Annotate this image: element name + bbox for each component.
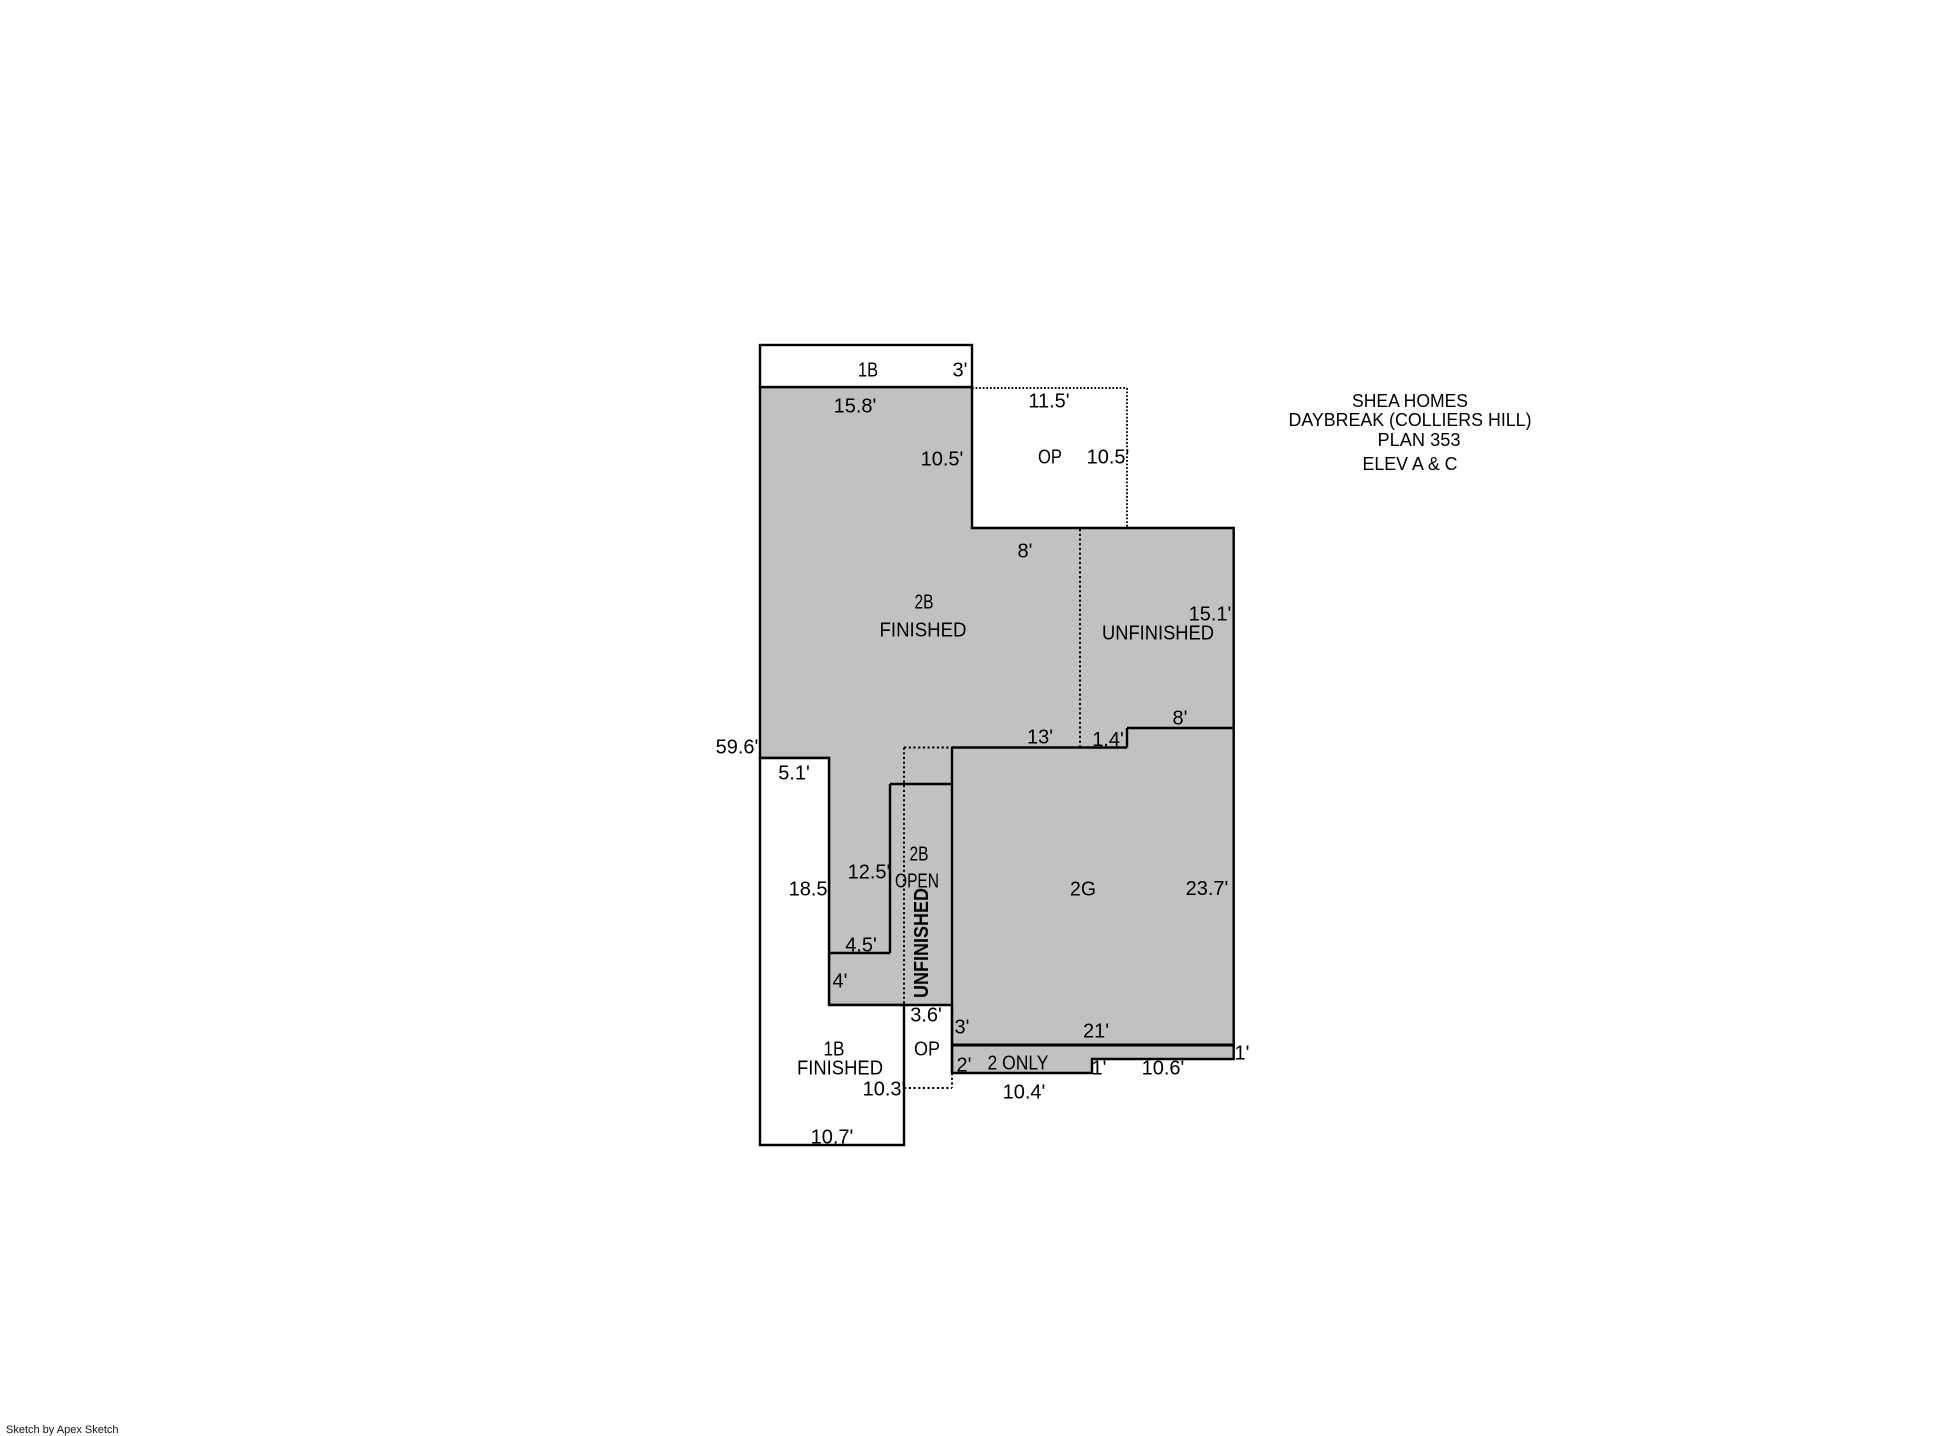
- svg-text:OP: OP: [914, 1039, 940, 1061]
- svg-text:10.5': 10.5': [921, 449, 964, 471]
- svg-text:3': 3': [955, 1017, 970, 1039]
- svg-text:23.7': 23.7': [1186, 878, 1229, 900]
- svg-text:15.1': 15.1': [1189, 604, 1232, 626]
- svg-text:4.5': 4.5': [845, 935, 877, 957]
- svg-text:FINISHED: FINISHED: [797, 1058, 883, 1080]
- svg-text:8': 8': [1173, 708, 1188, 730]
- svg-text:8': 8': [1018, 541, 1033, 563]
- svg-text:2B: 2B: [910, 844, 929, 866]
- svg-text:11.5': 11.5': [1028, 391, 1069, 413]
- svg-text:1': 1': [1092, 1058, 1107, 1080]
- svg-text:4': 4': [833, 971, 848, 993]
- svg-text:2G: 2G: [1070, 879, 1096, 901]
- svg-text:2 ONLY: 2 ONLY: [988, 1053, 1049, 1075]
- svg-text:5.1': 5.1': [778, 763, 810, 785]
- svg-text:1': 1': [1235, 1043, 1250, 1065]
- svg-text:UNFINISHED: UNFINISHED: [1102, 623, 1214, 645]
- svg-text:10.3': 10.3': [863, 1079, 906, 1101]
- svg-text:PLAN 353: PLAN 353: [1378, 430, 1461, 450]
- svg-text:59.6': 59.6': [716, 737, 759, 759]
- svg-text:OP: OP: [1038, 447, 1062, 469]
- svg-text:21': 21': [1083, 1021, 1109, 1043]
- svg-text:10.6': 10.6': [1142, 1058, 1185, 1080]
- svg-text:18.5': 18.5': [789, 879, 832, 901]
- svg-text:1B: 1B: [858, 360, 878, 382]
- svg-text:13': 13': [1027, 727, 1053, 749]
- svg-text:10.5': 10.5': [1087, 447, 1130, 469]
- svg-text:1.4': 1.4': [1092, 729, 1124, 751]
- svg-text:UNFINISHED: UNFINISHED: [911, 888, 933, 998]
- svg-text:Sketch by Apex Sketch: Sketch by Apex Sketch: [6, 1424, 119, 1436]
- svg-text:3': 3': [953, 360, 968, 382]
- svg-text:ELEV A & C: ELEV A & C: [1363, 454, 1458, 474]
- svg-text:15.8': 15.8': [834, 396, 877, 418]
- svg-text:2B: 2B: [915, 592, 934, 614]
- svg-text:12.5': 12.5': [848, 862, 891, 884]
- svg-text:10.4': 10.4': [1003, 1082, 1046, 1104]
- svg-text:SHEA HOMES: SHEA HOMES: [1352, 391, 1468, 411]
- svg-text:FINISHED: FINISHED: [880, 620, 967, 642]
- svg-text:10.7': 10.7': [811, 1127, 854, 1149]
- svg-text:2': 2': [957, 1055, 972, 1077]
- svg-text:DAYBREAK (COLLIERS HILL): DAYBREAK (COLLIERS HILL): [1289, 410, 1532, 430]
- svg-text:3.6': 3.6': [910, 1005, 942, 1027]
